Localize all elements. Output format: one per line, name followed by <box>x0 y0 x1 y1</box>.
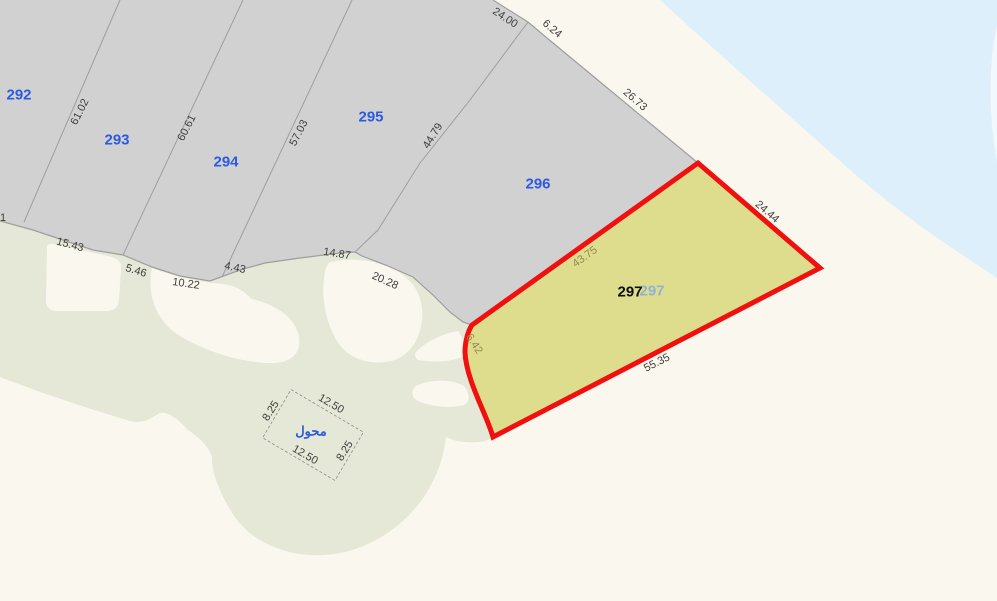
parcel-label-292: 292 <box>6 87 31 104</box>
map-canvas[interactable]: 292 293 294 295 296 297 297 61.02 60.61 … <box>0 0 997 601</box>
parcel-label-296: 296 <box>525 176 550 193</box>
parcel-label-295: 295 <box>358 109 383 126</box>
parcel-label-297-overlay: 297 <box>639 283 664 300</box>
parcel-label-297: 297 <box>617 284 642 301</box>
dim-partial-left-edge: 1 <box>0 212 6 224</box>
transformer-label: محول <box>295 424 327 440</box>
parcel-label-293: 293 <box>104 132 129 149</box>
parcel-label-294: 294 <box>213 154 239 171</box>
